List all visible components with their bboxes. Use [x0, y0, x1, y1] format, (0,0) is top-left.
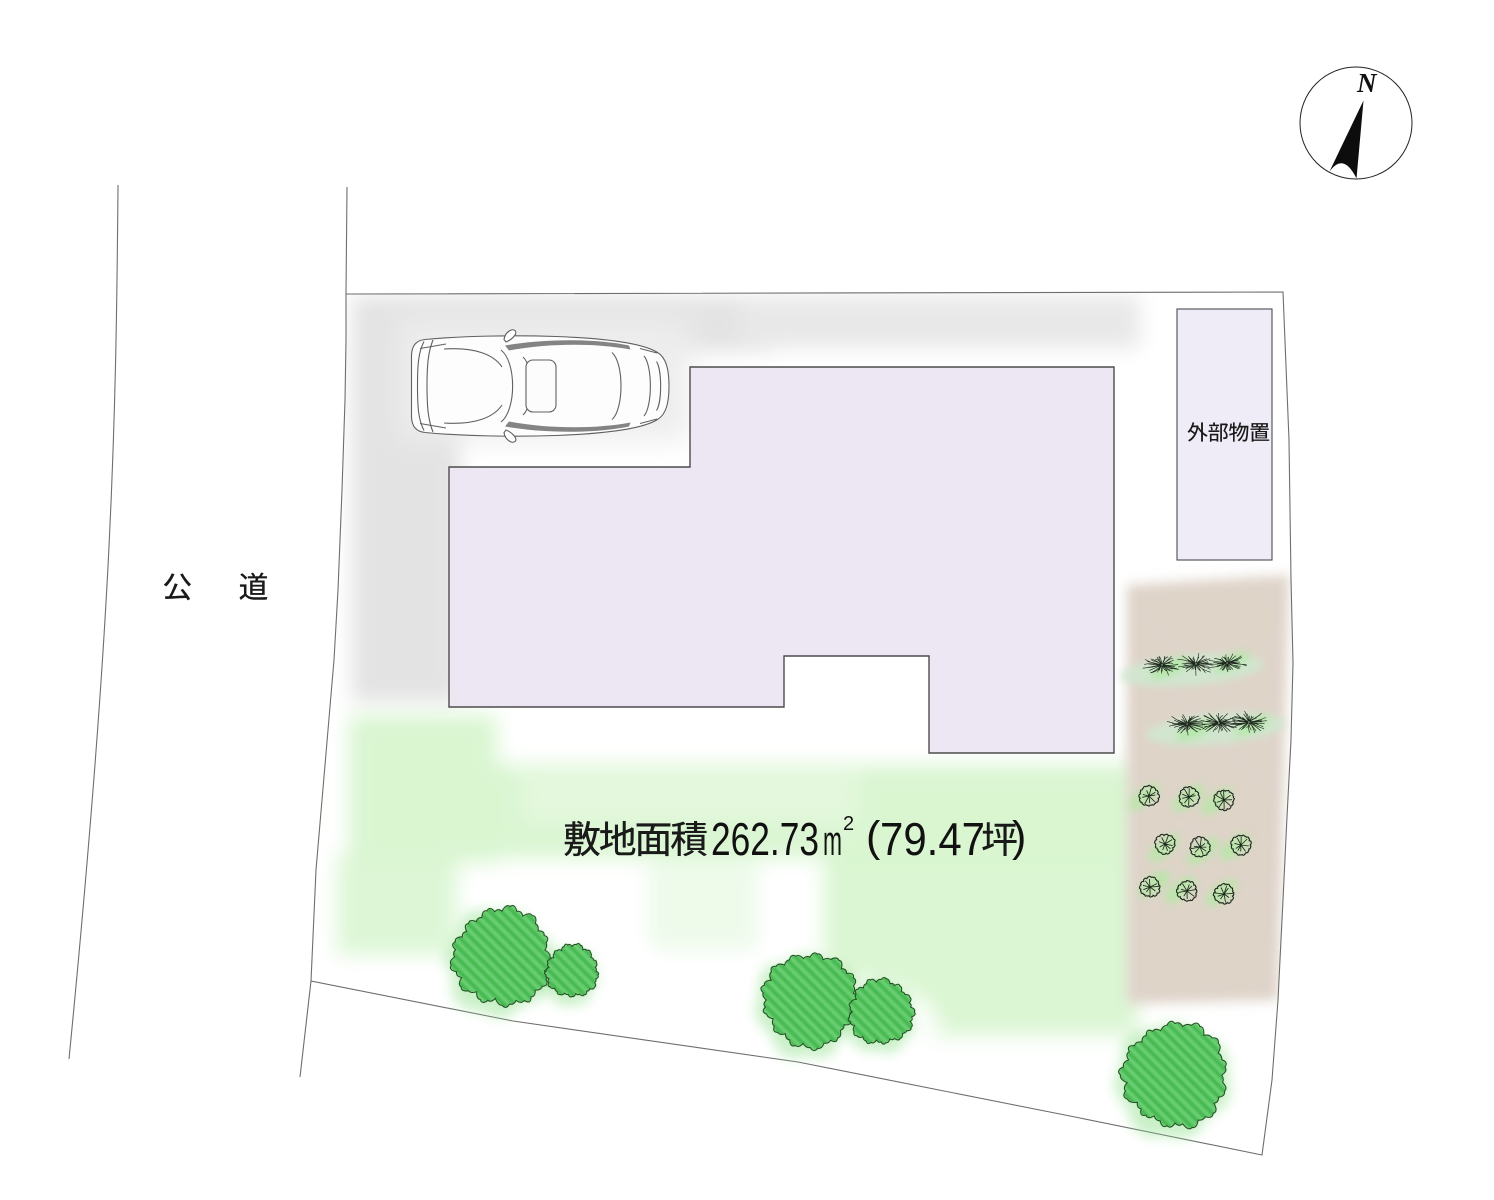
- svg-text:(: (: [866, 813, 881, 861]
- svg-text:79.47: 79.47: [880, 813, 985, 865]
- svg-text:m: m: [823, 817, 842, 864]
- svg-text:2: 2: [843, 813, 854, 835]
- svg-text:262.73: 262.73: [711, 813, 819, 865]
- svg-text:N: N: [1356, 68, 1378, 98]
- svg-text:): ): [1012, 813, 1026, 861]
